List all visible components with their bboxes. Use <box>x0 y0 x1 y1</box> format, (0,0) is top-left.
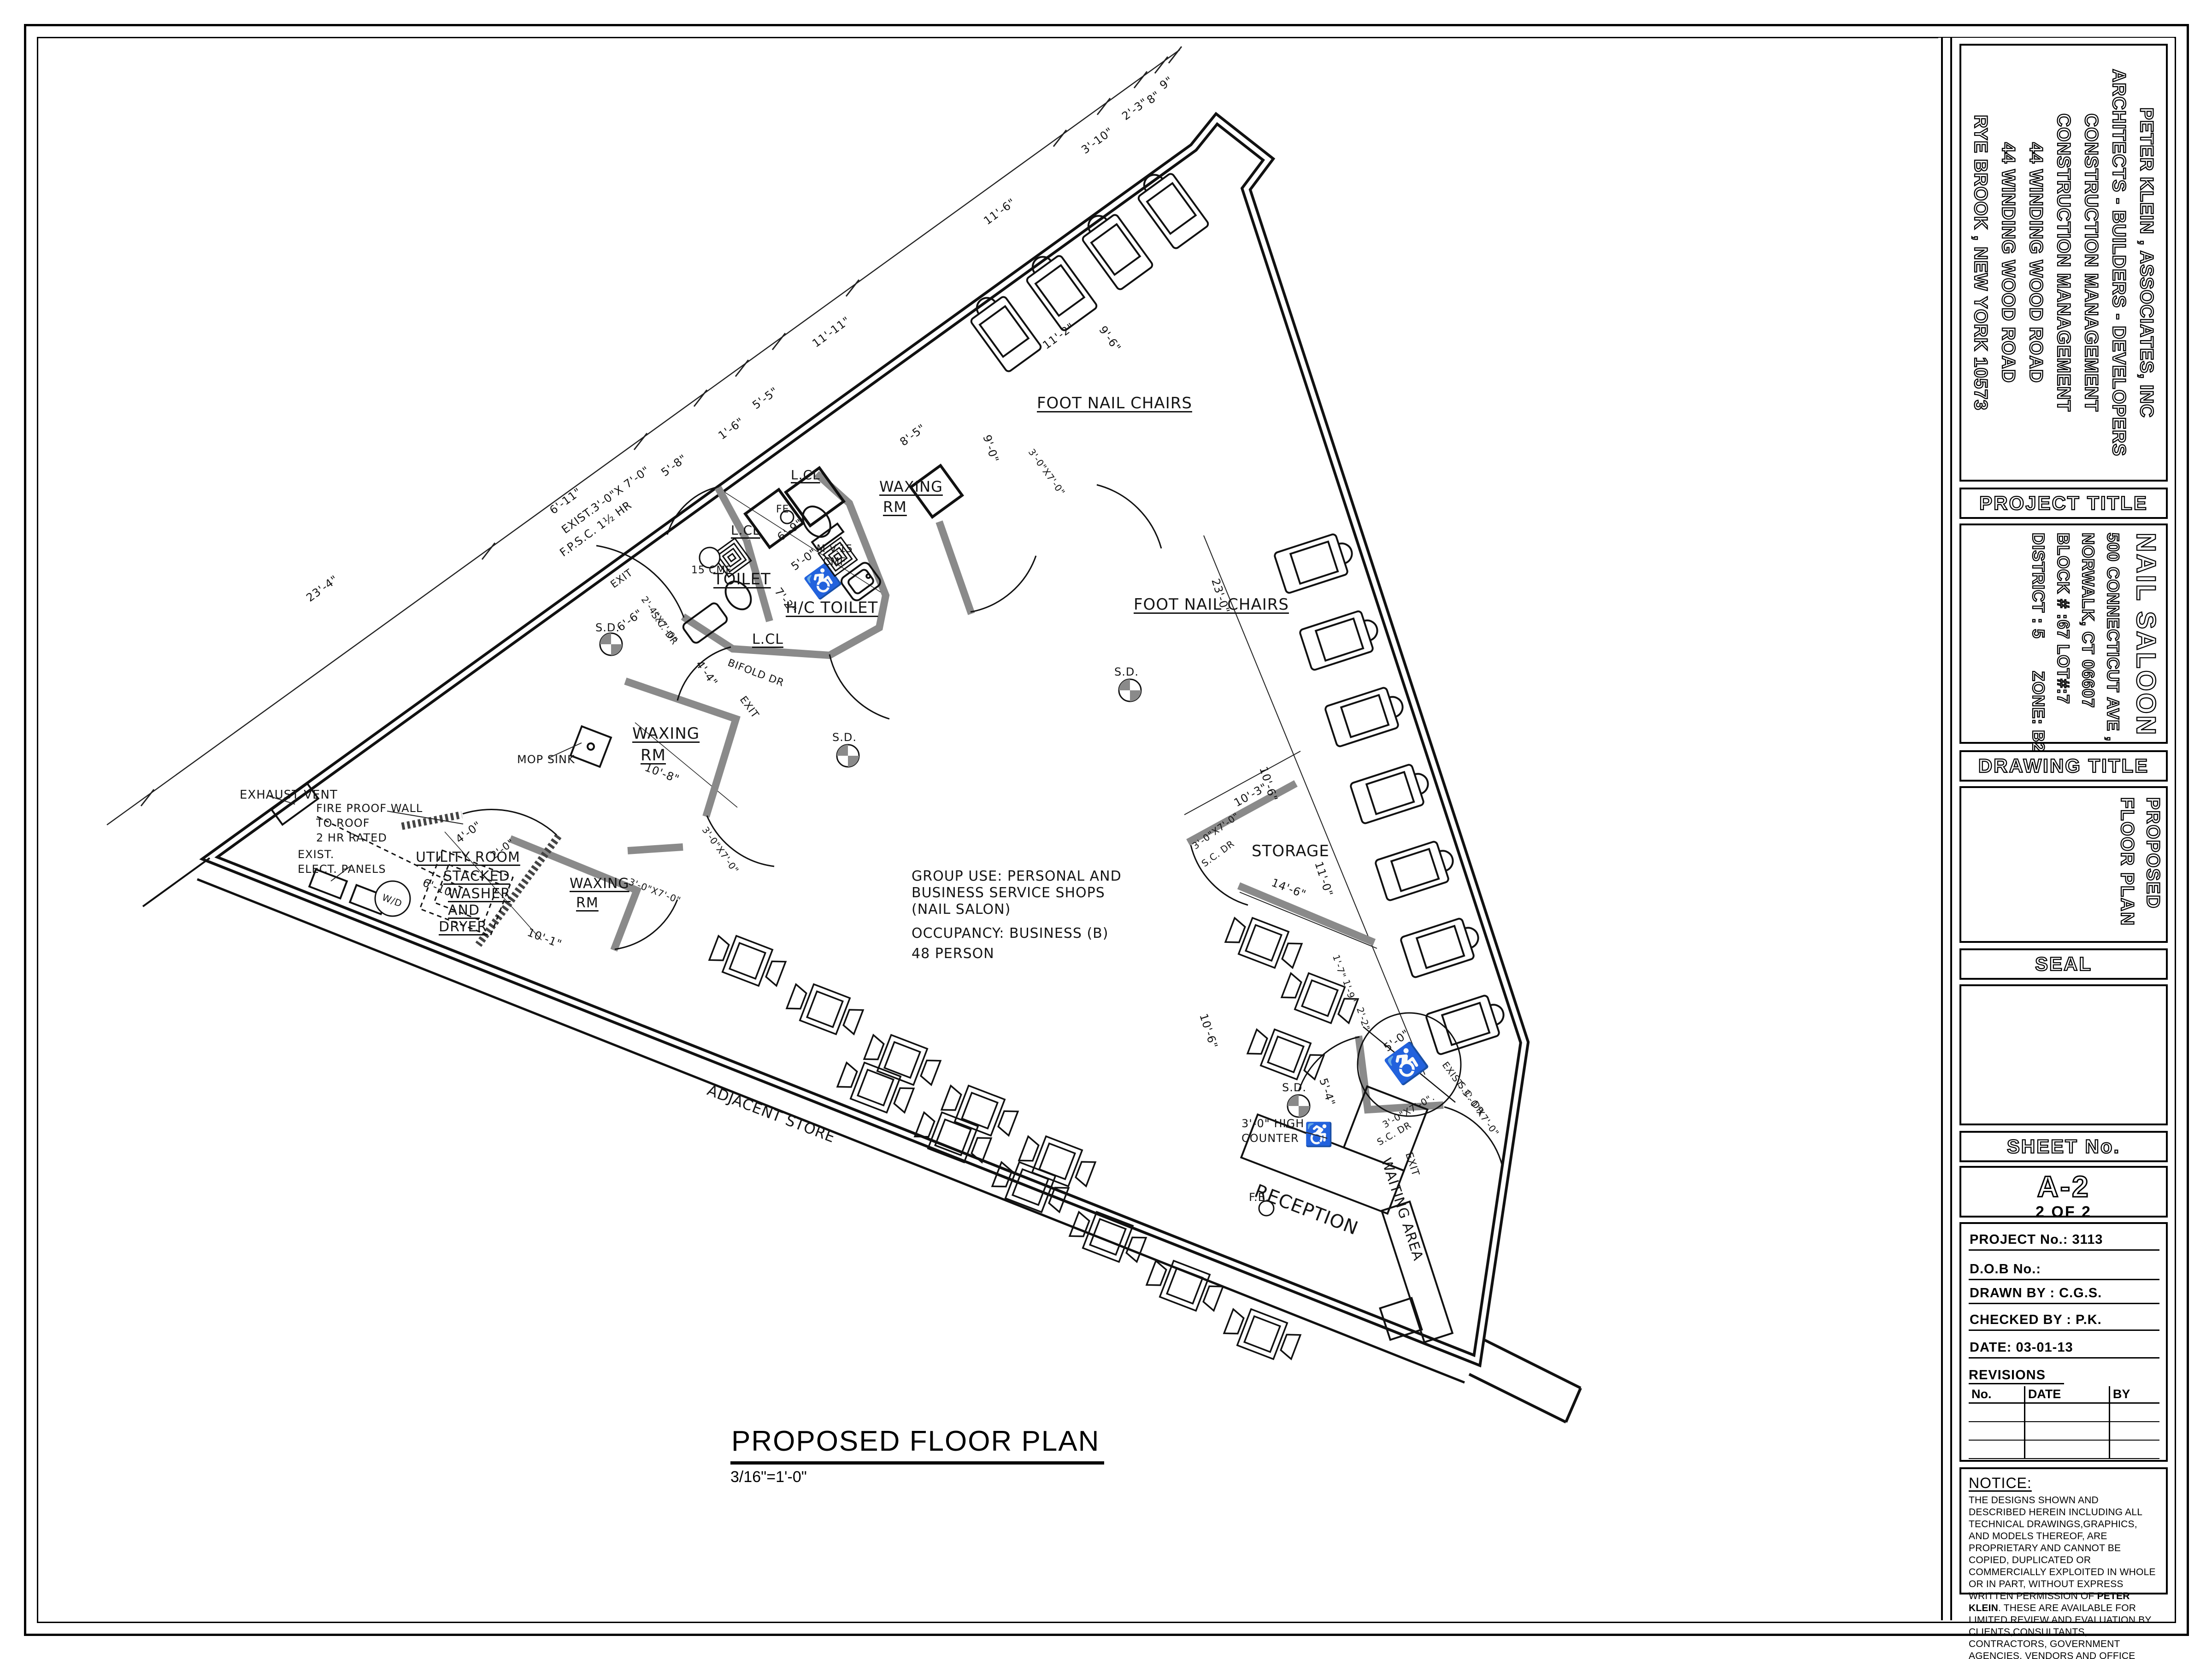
dim-11-2: 11'-2" <box>1041 321 1077 351</box>
dim-5-4: 5'-4" <box>1317 1077 1337 1108</box>
room-label-hc-toilet: H/C TOILET <box>786 600 878 617</box>
seal-box <box>1959 984 2168 1125</box>
dim-5-8: 5'-8" <box>659 453 689 479</box>
label-elect-2: ELECT. PANELS <box>298 864 386 875</box>
company-line: CONSTRUCTION MANAGEMENT <box>2050 113 2077 412</box>
drawing-title-header: DRAWING TITLE <box>1978 755 2149 777</box>
info-box: PROJECT No.: 3113 D.O.B No.: DRAWN BY : … <box>1959 1222 2168 1462</box>
door-waxing2: 3'-0"X7'-0" <box>700 825 741 875</box>
sheet-box: A-2 2 OF 2 <box>1959 1166 2168 1218</box>
label-stacked: STACKED <box>443 869 510 884</box>
label-exhaust-vent: EXHAUST VENT <box>240 789 338 801</box>
checked-by: CHECKED BY : P.K. <box>1969 1312 2159 1331</box>
label-exit-2: EXIT <box>738 694 761 720</box>
dim-5-0-toilet: 5'-0" <box>789 547 819 573</box>
dim-9-6: 9'-6" <box>1097 324 1123 354</box>
project-box: NAIL SALOON 500 CONNECTICUT AVE , NORWAL… <box>1959 524 2168 744</box>
dim-11-0: 11'-0" <box>1312 860 1335 898</box>
plan-labels-layer: FOOT NAIL CHAIRSFOOT NAIL CHAIRSWAXINGRM… <box>0 0 2212 1659</box>
revisions-col-date: DATE <box>2024 1386 2109 1403</box>
dim-3-10: 3'-10" <box>1080 125 1116 156</box>
sheet-number: A-2 <box>1961 1171 2166 1203</box>
drawn-by: DRAWN BY : C.G.S. <box>1969 1285 2159 1304</box>
drawing-info: PROPOSED FLOOR PLAN <box>1961 788 2166 941</box>
room-label-waxing-1: WAXING <box>879 479 943 495</box>
dim-11-6: 11'-6" <box>982 196 1018 227</box>
room-label-waxing-2: WAXING <box>632 726 700 742</box>
label-fireproof-1: FIRE PROOF WALL <box>316 803 423 814</box>
room-label-waxing-2-rm: RM <box>641 747 666 764</box>
dim-2-3: 2'-3" <box>1120 96 1150 123</box>
note-group-use-3: (NAIL SALON) <box>912 902 1011 917</box>
project-address-1: 500 CONNECTICUT AVE , <box>2100 533 2125 742</box>
plan-title-text: PROPOSED FLOOR PLAN <box>730 1425 1104 1465</box>
seal-band: SEAL <box>1959 948 2168 980</box>
note-occupancy: OCCUPANCY: BUSINESS (B) <box>912 926 1108 941</box>
sheet-page: ♿ ♿ ♿ FOOT NAIL CHAIRSFOOT NAIL CH <box>0 0 2212 1659</box>
notice-box: NOTICE: THE DESIGNS SHOWN AND DESCRIBED … <box>1959 1467 2168 1594</box>
label-mop-sink: MOP SINK <box>517 754 575 765</box>
dim-8-5: 8'-5" <box>898 422 928 448</box>
drawing-title-band: DRAWING TITLE <box>1959 750 2168 782</box>
room-label-reception: RECEPTION <box>1252 1181 1360 1238</box>
sheet-no-header: SHEET No. <box>2007 1135 2120 1158</box>
label-lcl-1: L.CL <box>791 468 820 482</box>
label-adjacent-store: ADJACENT STORE <box>705 1082 837 1146</box>
company-line: RYE BROOK , NEW YORK 10573 <box>1967 115 1994 411</box>
dim-10-6-b: 10'-6" <box>1197 1012 1219 1050</box>
note-group-use-1: GROUP USE: PERSONAL AND <box>912 869 1122 884</box>
revisions-row <box>1969 1440 2159 1459</box>
revisions-row <box>1969 1403 2159 1422</box>
title-block-separator <box>1941 38 1943 1620</box>
label-counter-2: COUNTER <box>1241 1133 1299 1144</box>
door-exist-exit-2: S.C. DR <box>1456 1080 1486 1117</box>
dim-10-8: 10'-8" <box>643 762 681 786</box>
dim-5-0-hc: 5'-0" <box>1382 1028 1412 1054</box>
label-lcl-3: L.CL <box>752 632 783 647</box>
notice-text-pre: THE DESIGNS SHOWN AND DESCRIBED HEREIN I… <box>1969 1495 2156 1601</box>
revisions-title: REVISIONS <box>1969 1368 2064 1384</box>
room-label-waxing-3-rm: RM <box>576 896 599 911</box>
label-lcl-2: L.CL <box>731 524 760 537</box>
dim-4-0: 4'-0" <box>454 819 484 846</box>
project-info: NAIL SALOON 500 CONNECTICUT AVE , NORWAL… <box>1961 525 2166 742</box>
label-fireproof-3: 2 HR RATED <box>316 832 387 844</box>
notice-body: THE DESIGNS SHOWN AND DESCRIBED HEREIN I… <box>1969 1494 2159 1659</box>
project-zone: ZONE: B2 <box>2029 671 2048 752</box>
revisions-table: No. DATE BY <box>1969 1386 2159 1459</box>
note-group-use-2: BUSINESS SERVICE SHOPS <box>912 886 1105 900</box>
project-block-lot: BLOCK # :67 LOT#:7 <box>2051 533 2076 742</box>
company-info: PETER KLEIN , ASSOCIATES, INC ARCHITECTS… <box>1961 46 2166 480</box>
room-label-waxing-3: WAXING <box>570 877 629 891</box>
company-line: PETER KLEIN , ASSOCIATES, INC <box>2133 107 2160 418</box>
label-cmf: CMF <box>823 557 846 567</box>
label-sd-1: S.D. <box>595 622 620 634</box>
seal-header: SEAL <box>2035 953 2092 975</box>
label-wd: W/D <box>381 893 403 909</box>
project-district-zone: DISTRICT : 5ZONE: B2 <box>2026 533 2051 742</box>
date: DATE: 03-01-13 <box>1969 1339 2159 1359</box>
company-line: 44 WINDING WOOD ROAD <box>1994 142 2022 383</box>
label-mv15: M.V.15 <box>817 544 853 554</box>
room-label-foot-nail-chairs-top: FOOT NAIL CHAIRS <box>1037 395 1192 412</box>
dim-5-5: 5'-5" <box>751 385 781 412</box>
revisions-col-no: No. <box>1969 1386 2024 1403</box>
label-dryer: DRYER <box>439 920 487 935</box>
company-line: ARCHITECTS - BUILDERS - DEVELOPERS <box>2105 69 2133 457</box>
drawing-name-2: FLOOR PLAN <box>2114 797 2140 941</box>
label-fe-2: FE <box>776 504 789 515</box>
label-fe-1: F.E. <box>1249 1192 1269 1203</box>
door-waxing3: 3'-0"X7'-0" <box>627 877 682 906</box>
dim-2-2: 2'-2" <box>1355 1006 1371 1032</box>
project-address-2: NORWALK, CT 06607 <box>2076 533 2100 742</box>
dim-1-7: 1'-7" <box>1331 953 1347 979</box>
door-bifold: BIFOLD DR <box>726 658 786 689</box>
room-label-storage: STORAGE <box>1252 843 1330 860</box>
dim-10-1: 10'-1" <box>525 927 563 951</box>
dim-6-9: 6'-9" <box>776 517 806 543</box>
label-and: AND <box>448 903 480 918</box>
label-sd-2: S.D. <box>1114 666 1139 678</box>
label-sd-4: S.D. <box>832 732 857 743</box>
room-label-foot-nail-chairs-right: FOOT NAIL CHAIRS <box>1134 597 1289 613</box>
revisions-col-by: BY <box>2109 1386 2159 1403</box>
company-line: CONSTRUCTION MANAGEMENT <box>2077 113 2105 412</box>
plan-scale: 3/16"=1'-0" <box>730 1468 1104 1486</box>
dim-9-0: 9'-0" <box>981 434 1000 465</box>
project-no: PROJECT No.: 3113 <box>1969 1231 2159 1251</box>
dim-9in: 9" <box>1158 75 1176 92</box>
project-title-band: PROJECT TITLE <box>1959 488 2168 519</box>
dim-4-4: 4'-4" <box>694 659 720 688</box>
project-title-header: PROJECT TITLE <box>1979 492 2148 514</box>
label-exit-3: EXIT <box>1403 1151 1421 1177</box>
dob-no: D.O.B No.: <box>1969 1261 2159 1280</box>
dim-23-4: 23'-4" <box>305 573 341 604</box>
drawing-name-1: PROPOSED <box>2140 797 2166 941</box>
label-15cmf: 15 CMF <box>691 565 732 576</box>
plan-title: PROPOSED FLOOR PLAN 3/16"=1'-0" <box>730 1425 1104 1486</box>
sheet-no-band: SHEET No. <box>1959 1131 2168 1162</box>
notice-header: NOTICE: <box>1969 1475 2159 1492</box>
label-fireproof-2: TO ROOF <box>316 818 370 829</box>
company-box: PETER KLEIN , ASSOCIATES, INC ARCHITECTS… <box>1959 44 2168 482</box>
company-line: 44 WINDING WOOD ROAD <box>2022 142 2050 383</box>
door-2-4-scdr: S.C. DR <box>650 610 680 647</box>
dim-11-11: 11'-11" <box>811 315 853 350</box>
label-sd-3: S.D. <box>1282 1082 1306 1094</box>
dim-1-6: 1'-6" <box>717 416 747 442</box>
note-person-count: 48 PERSON <box>912 947 994 961</box>
title-block-separator-2 <box>1950 38 1952 1620</box>
label-counter-1: 3'-0" HIGH <box>1241 1118 1304 1130</box>
door-top: 3'-0"X7'-0" <box>1027 447 1067 497</box>
drawing-box: PROPOSED FLOOR PLAN <box>1959 786 2168 943</box>
sheet-of: 2 OF 2 <box>1961 1203 2166 1221</box>
revisions-row <box>1969 1422 2159 1440</box>
dim-14-6: 14'-6" <box>1270 877 1307 901</box>
label-elect-1: EXIST. <box>298 849 334 860</box>
project-name: NAIL SALOON <box>2125 533 2166 742</box>
dim-1-9: 1'-9" <box>1341 978 1358 1004</box>
room-label-waxing-1-rm: RM <box>883 500 907 515</box>
label-exit-1: EXIT <box>609 567 635 590</box>
project-district: DISTRICT : 5 <box>2029 533 2048 639</box>
